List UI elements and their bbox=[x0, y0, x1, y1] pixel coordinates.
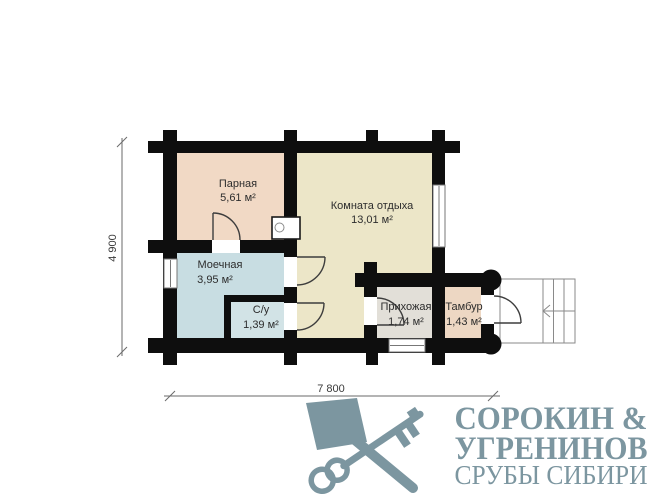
area-tambur: 1,43 м² bbox=[446, 316, 482, 328]
log-end bbox=[432, 353, 445, 365]
dim-label-height: 4 900 bbox=[107, 234, 119, 262]
log-end bbox=[163, 353, 177, 365]
log-end bbox=[284, 353, 297, 365]
area-moechnaya: 3,95 м² bbox=[197, 274, 233, 286]
area-parnaya: 5,61 м² bbox=[220, 192, 256, 204]
log-end bbox=[432, 130, 445, 141]
round-log-end bbox=[481, 270, 502, 291]
opening-su bbox=[284, 303, 297, 330]
axe-icon bbox=[306, 398, 413, 488]
logo: СОРОКИН & УГРЕНИНОВ СРУБЫ СИБИРИ bbox=[306, 398, 648, 502]
logo-line3: СРУБЫ СИБИРИ bbox=[455, 460, 648, 490]
opening-tambur-exit bbox=[481, 295, 494, 324]
opening-parnaya bbox=[212, 240, 240, 253]
label-tambur: Тамбур bbox=[445, 301, 482, 313]
door-arc-tambur-exit bbox=[494, 296, 521, 323]
floor-plan-canvas: Парная 5,61 м² Комната отдыха 13,01 м² М… bbox=[0, 0, 667, 502]
stove bbox=[272, 217, 300, 239]
partition-su-top bbox=[224, 295, 284, 302]
log-end bbox=[366, 353, 378, 365]
log-end bbox=[284, 130, 297, 141]
log-end bbox=[163, 130, 177, 141]
opening-prihozhaya bbox=[364, 297, 377, 325]
round-log-end bbox=[481, 334, 502, 355]
label-prihozhaya: Прихожая bbox=[381, 301, 432, 313]
label-su: С/у bbox=[253, 304, 270, 316]
area-prihozhaya: 1,74 м² bbox=[388, 316, 424, 328]
stove-burner-icon bbox=[275, 223, 284, 232]
label-moechnaya: Моечная bbox=[197, 259, 242, 271]
log-end bbox=[366, 130, 378, 141]
label-parnaya: Парная bbox=[219, 178, 257, 190]
area-komnata-otdyha: 13,01 м² bbox=[351, 214, 393, 226]
porch-stairs bbox=[500, 279, 575, 343]
floor-plan-page: Парная 5,61 м² Комната отдыха 13,01 м² М… bbox=[0, 0, 667, 502]
partition-su-left bbox=[224, 295, 231, 338]
opening-moechnaya bbox=[284, 257, 297, 287]
area-su: 1,39 м² bbox=[243, 319, 279, 331]
label-komnata-otdyha: Комната отдыха bbox=[331, 200, 414, 212]
dim-label-width: 7 800 bbox=[317, 383, 345, 395]
wall-top bbox=[148, 141, 460, 153]
